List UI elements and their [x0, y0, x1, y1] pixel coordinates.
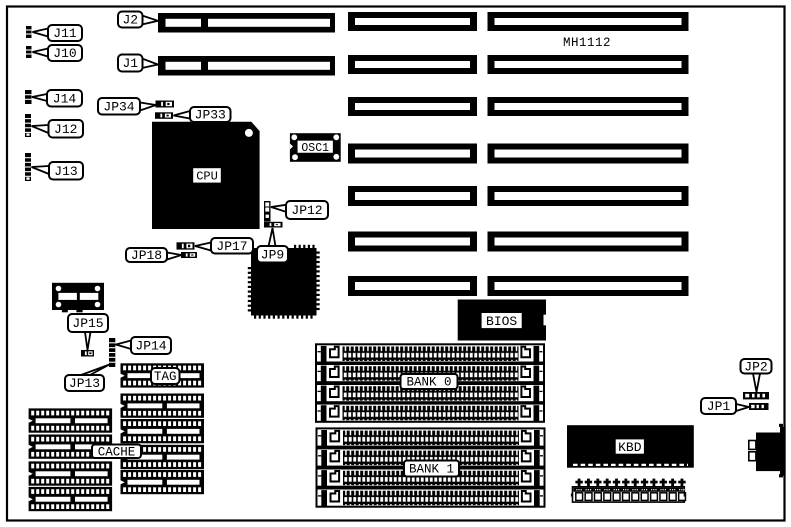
- svg-text:JP12: JP12: [291, 203, 322, 218]
- svg-text:J1: J1: [122, 56, 138, 71]
- svg-text:CACHE: CACHE: [98, 445, 136, 459]
- svg-text:JP1: JP1: [707, 399, 731, 414]
- svg-text:JP2: JP2: [744, 359, 767, 374]
- svg-text:J12: J12: [54, 122, 77, 137]
- svg-text:J13: J13: [54, 164, 77, 179]
- svg-text:OSC1: OSC1: [301, 142, 329, 155]
- svg-text:TAG: TAG: [154, 370, 177, 384]
- svg-text:BANK 1: BANK 1: [409, 463, 454, 477]
- svg-text:J10: J10: [53, 46, 76, 61]
- svg-text:J11: J11: [53, 26, 77, 41]
- svg-text:JP14: JP14: [135, 339, 166, 354]
- svg-text:CPU: CPU: [196, 170, 218, 184]
- svg-text:JP18: JP18: [131, 248, 162, 263]
- svg-text:JP15: JP15: [72, 316, 103, 331]
- svg-text:BANK 0: BANK 0: [406, 376, 451, 390]
- svg-text:KBD: KBD: [618, 440, 642, 455]
- svg-text:BIOS: BIOS: [486, 314, 517, 329]
- svg-text:MH1112: MH1112: [563, 36, 611, 50]
- svg-text:JP33: JP33: [195, 108, 226, 123]
- svg-text:J14: J14: [53, 91, 77, 106]
- svg-text:JP34: JP34: [103, 99, 134, 114]
- svg-text:JP17: JP17: [216, 239, 247, 254]
- svg-text:JP9: JP9: [261, 247, 284, 262]
- svg-text:JP13: JP13: [69, 376, 100, 391]
- svg-text:J2: J2: [122, 13, 138, 28]
